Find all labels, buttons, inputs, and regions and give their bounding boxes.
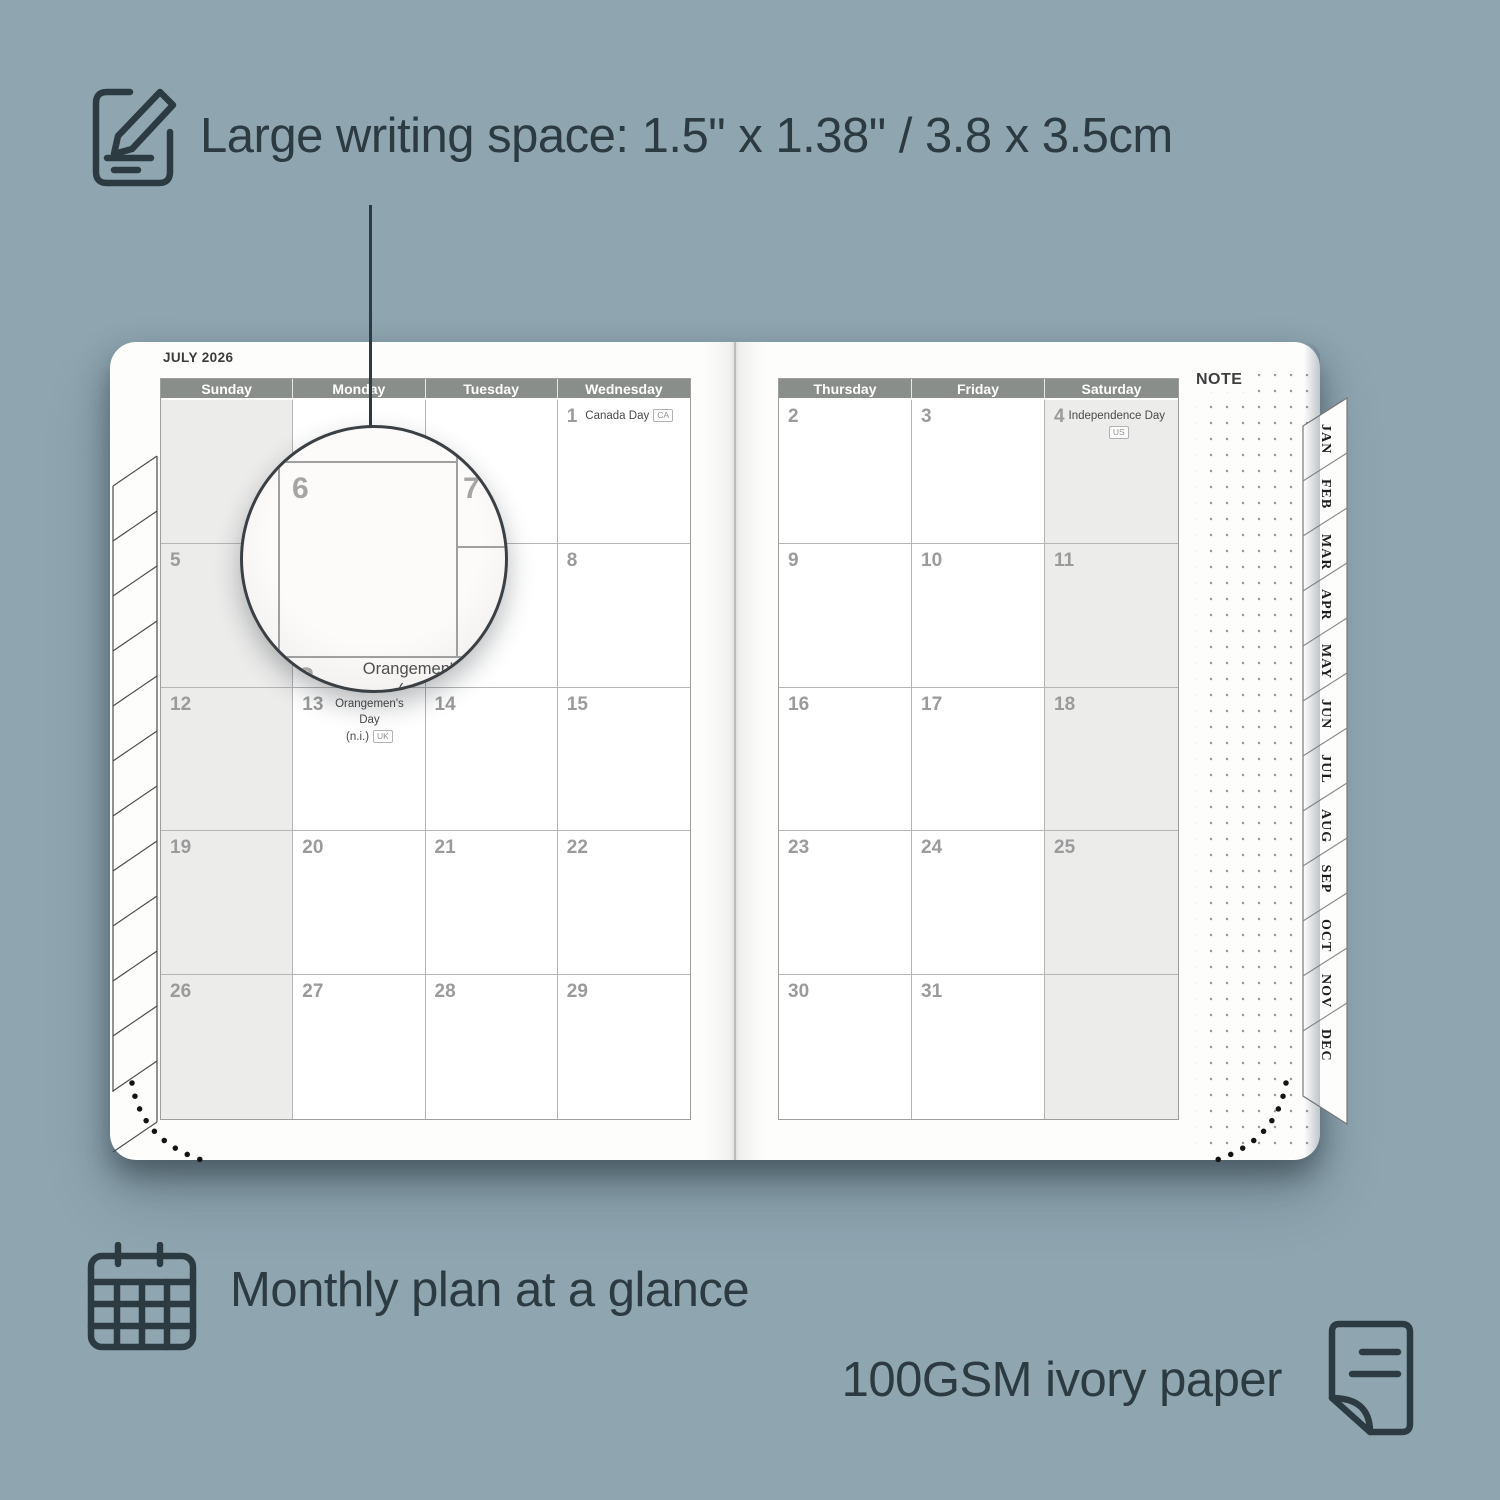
calendar-cell-18: 18 — [1045, 688, 1178, 832]
date-number: 28 — [435, 982, 456, 1003]
day-header-friday: Friday — [912, 379, 1045, 400]
calendar-grid-right-page: ThursdayFridaySaturday234Independence Da… — [778, 378, 1179, 1120]
calendar-cell-13: 13Orangemen's Day(n.i.)UK — [293, 688, 425, 832]
calendar-cell-22: 22 — [558, 831, 690, 975]
date-number: 2 — [788, 407, 799, 428]
callout-connector-line — [369, 205, 372, 429]
calendar-cell-31: 31 — [912, 975, 1045, 1119]
country-badge: US — [1109, 426, 1129, 439]
calendar-cell-10: 10 — [912, 544, 1045, 688]
holiday-text: Independence Day — [1069, 410, 1166, 422]
magnified-holiday-name: Orangemen's Day — [329, 660, 508, 680]
magnified-grid-line — [456, 428, 458, 658]
date-number: 11 — [1054, 551, 1074, 572]
date-number: 1 — [567, 407, 578, 428]
holiday-line: (n.i.)UK — [323, 729, 415, 746]
magnified-date-13: 13 — [281, 662, 314, 693]
holiday-line: Canada DayCA — [577, 408, 681, 425]
day-header-thursday: Thursday — [779, 379, 912, 400]
calendar-cell-8: 8 — [558, 544, 690, 688]
calendar-cell-15: 15 — [558, 688, 690, 832]
paper-callout: 100GSM ivory paper — [842, 1352, 1282, 1408]
calendar-cell-27: 27 — [293, 975, 425, 1119]
monthly-plan-callout: Monthly plan at a glance — [230, 1262, 749, 1318]
calendar-cell-16: 16 — [779, 688, 912, 832]
note-pencil-icon — [86, 80, 191, 195]
calendar-cell-19: 19 — [161, 831, 293, 975]
writing-space-callout: Large writing space: 1.5" x 1.38" / 3.8 … — [200, 108, 1173, 164]
holiday-label: Canada DayCA — [577, 408, 681, 425]
date-number: 17 — [921, 695, 942, 716]
calendar-cell-empty — [1045, 975, 1178, 1119]
calendar-cell-29: 29 — [558, 975, 690, 1119]
calendar-cell-3: 3 — [912, 400, 1045, 544]
holiday-text: Canada Day — [585, 410, 649, 422]
magnified-grid-line — [243, 461, 456, 463]
date-number: 23 — [788, 838, 809, 859]
calendar-cell-9: 9 — [779, 544, 912, 688]
date-number: 3 — [921, 407, 932, 428]
month-title: JULY 2026 — [163, 350, 233, 365]
date-number: 9 — [788, 551, 799, 572]
magnifier-circle: 6 7 13 Orangemen's Day (n.i.)UK — [240, 425, 508, 693]
date-number: 22 — [567, 838, 588, 859]
date-number: 29 — [567, 982, 588, 1003]
day-header-tuesday: Tuesday — [426, 379, 558, 400]
date-number: 4 — [1054, 407, 1065, 428]
holiday-label: Orangemen's Day(n.i.)UK — [323, 696, 415, 746]
date-number: 5 — [170, 551, 181, 572]
calendar-cell-28: 28 — [426, 975, 558, 1119]
country-badge: UK — [373, 730, 393, 743]
holiday-line: Orangemen's Day — [323, 696, 415, 729]
date-number: 19 — [170, 838, 191, 859]
date-number: 21 — [435, 838, 456, 859]
date-number: 13 — [302, 695, 323, 716]
day-header-monday: Monday — [293, 379, 425, 400]
calendar-cell-11: 11 — [1045, 544, 1178, 688]
note-label: NOTE — [1196, 371, 1249, 392]
date-number: 14 — [435, 695, 456, 716]
holiday-text: (n.i.) — [346, 731, 369, 743]
calendar-cell-4: 4Independence DayUS — [1045, 400, 1178, 544]
date-number: 12 — [170, 695, 191, 716]
date-number: 26 — [170, 982, 191, 1003]
page-edge-hatch — [112, 432, 158, 1156]
calendar-cell-25: 25 — [1045, 831, 1178, 975]
date-number: 30 — [788, 982, 809, 1003]
calendar-icon — [86, 1242, 198, 1352]
spine-line — [734, 342, 736, 1160]
page-edge-shadow — [1304, 342, 1320, 1160]
date-number: 10 — [921, 551, 942, 572]
calendar-cell-24: 24 — [912, 831, 1045, 975]
calendar-cell-21: 21 — [426, 831, 558, 975]
calendar-cell-1: 1Canada DayCA — [558, 400, 690, 544]
paper-icon — [1322, 1318, 1416, 1438]
date-number: 16 — [788, 695, 809, 716]
calendar-cell-23: 23 — [779, 831, 912, 975]
dotted-corner-left — [120, 1077, 220, 1172]
calendar-cell-2: 2 — [779, 400, 912, 544]
calendar-cell-12: 12 — [161, 688, 293, 832]
magnified-grid-line — [243, 656, 505, 658]
holiday-line: Independence DayUS — [1065, 408, 1169, 441]
dotted-corner-right — [1200, 1077, 1300, 1172]
date-number: 8 — [567, 551, 578, 572]
day-header-wednesday: Wednesday — [558, 379, 690, 400]
magnified-grid-line — [456, 546, 505, 548]
country-badge: CA — [653, 409, 673, 422]
magnified-date-6: 6 — [292, 472, 309, 506]
date-number: 27 — [302, 982, 323, 1003]
magnified-grid-line — [278, 461, 280, 658]
date-number: 24 — [921, 838, 942, 859]
day-header-sunday: Sunday — [161, 379, 293, 400]
day-header-saturday: Saturday — [1045, 379, 1178, 400]
calendar-cell-30: 30 — [779, 975, 912, 1119]
date-number: 18 — [1054, 695, 1075, 716]
holiday-label: Independence DayUS — [1065, 408, 1169, 441]
note-dot-grid: NOTE — [1196, 374, 1310, 1148]
date-number: 25 — [1054, 838, 1075, 859]
date-number: 31 — [921, 982, 942, 1003]
calendar-cell-17: 17 — [912, 688, 1045, 832]
date-number: 15 — [567, 695, 588, 716]
calendar-cell-14: 14 — [426, 688, 558, 832]
holiday-text: Orangemen's Day — [335, 698, 404, 727]
magnified-date-7: 7 — [463, 472, 480, 506]
date-number: 20 — [302, 838, 323, 859]
calendar-cell-20: 20 — [293, 831, 425, 975]
